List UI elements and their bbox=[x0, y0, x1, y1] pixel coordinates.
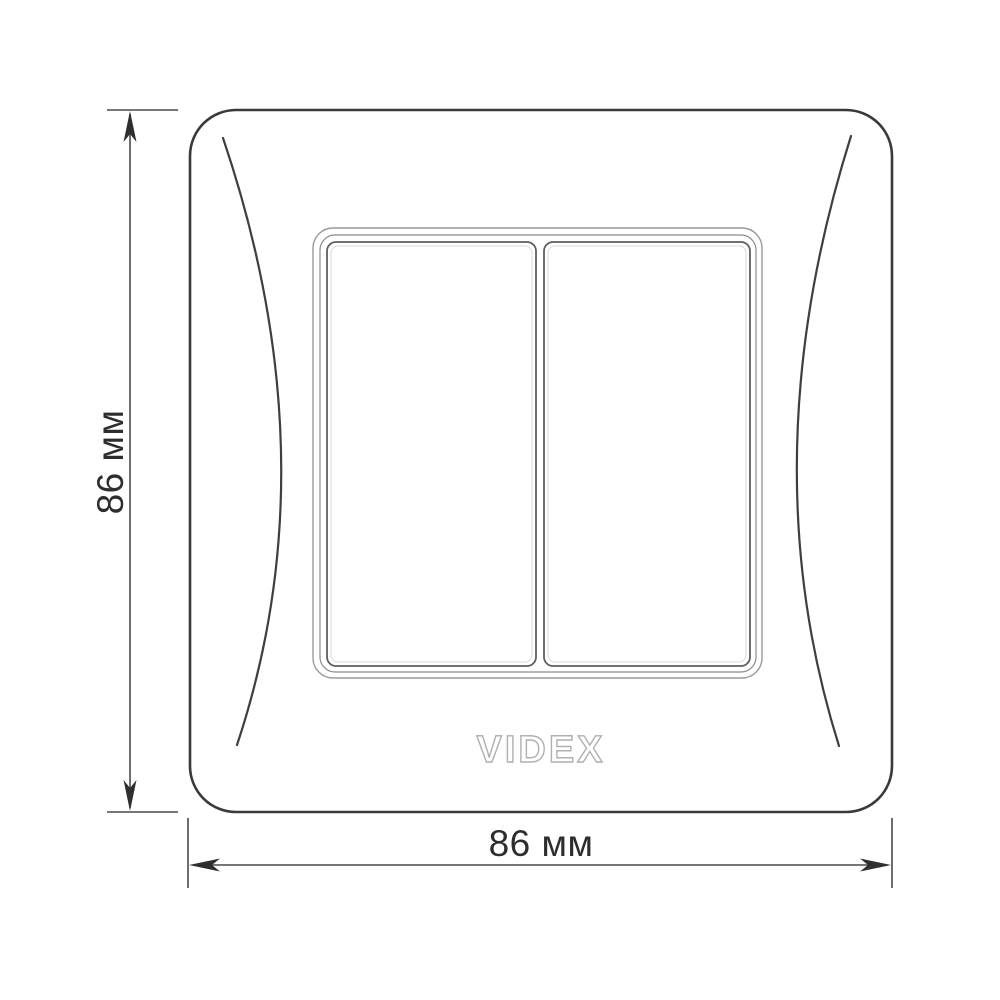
brand-logo: VIDEX bbox=[476, 729, 605, 771]
height-dimension-label: 86 мм bbox=[90, 410, 131, 515]
switch-dimension-drawing: VIDEX 86 мм 86 мм bbox=[0, 0, 1000, 1000]
width-dimension-label: 86 мм bbox=[489, 823, 594, 864]
width-dimension: 86 мм bbox=[188, 818, 892, 888]
height-dimension: 86 мм bbox=[90, 110, 178, 812]
left-rocker-button[interactable] bbox=[327, 242, 536, 666]
right-rocker-button[interactable] bbox=[544, 242, 750, 666]
faceplate-outline bbox=[190, 110, 892, 812]
